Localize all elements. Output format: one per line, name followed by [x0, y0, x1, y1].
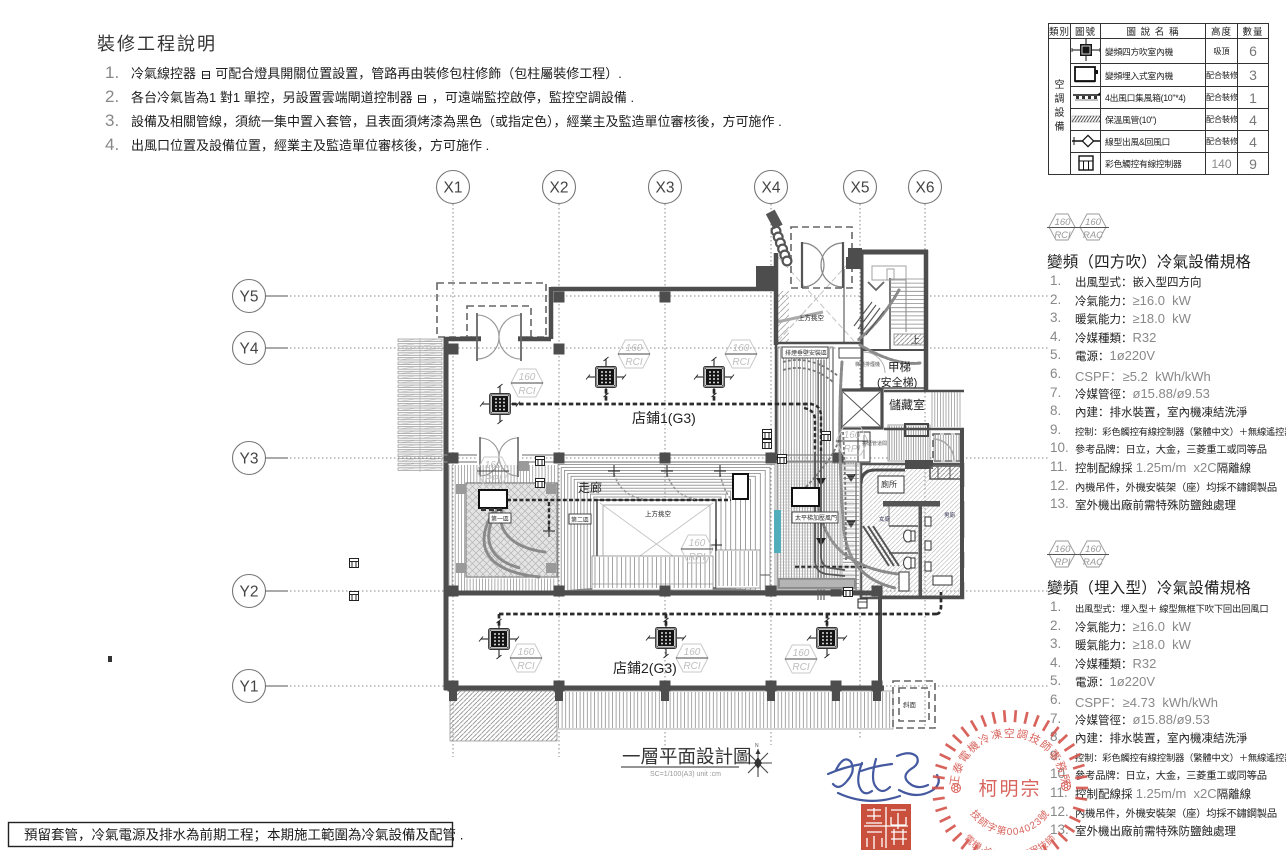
svg-text:技師字第004023號: 技師字第004023號 [968, 807, 1053, 838]
svg-text:Y5: Y5 [240, 289, 259, 306]
svg-text:160: 160 [519, 372, 536, 383]
svg-text:RCI: RCI [683, 661, 700, 672]
svg-text:RCI: RCI [625, 357, 642, 368]
svg-text:排煙管道間: 排煙管道間 [862, 440, 887, 447]
svg-text:RPI: RPI [485, 474, 502, 485]
svg-text:店鋪1(G3): 店鋪1(G3) [632, 410, 696, 426]
svg-text:一層平面設計圖: 一層平面設計圖 [622, 746, 752, 767]
svg-text:上方挑空: 上方挑空 [645, 509, 672, 518]
svg-text:Y4: Y4 [240, 341, 259, 358]
svg-text:X5: X5 [851, 180, 870, 197]
svg-text:店鋪2(G3): 店鋪2(G3) [613, 660, 677, 676]
svg-text:走廊: 走廊 [578, 480, 602, 495]
svg-text:160: 160 [793, 648, 810, 659]
svg-text:160: 160 [689, 538, 706, 549]
svg-text:N: N [755, 743, 759, 749]
svg-text:RCI: RCI [518, 386, 535, 397]
svg-text:Y3: Y3 [240, 451, 259, 468]
svg-text:排煙垂壁安裝區: 排煙垂壁安裝區 [785, 349, 827, 357]
svg-text:女廁: 女廁 [879, 515, 891, 523]
svg-text:RPI: RPI [689, 552, 706, 563]
svg-text:160: 160 [626, 343, 643, 354]
svg-text:(安全梯): (安全梯) [877, 375, 917, 389]
svg-text:160: 160 [485, 460, 502, 471]
svg-text:上: 上 [911, 335, 920, 345]
svg-text:160: 160 [844, 430, 861, 441]
svg-text:廁所: 廁所 [881, 479, 897, 489]
svg-text:Y2: Y2 [240, 584, 259, 601]
svg-text:X4: X4 [762, 180, 781, 197]
svg-text:160: 160 [733, 343, 750, 354]
svg-text:RCI: RCI [732, 357, 749, 368]
svg-text:梯廳排煙機: 梯廳排煙機 [855, 361, 880, 368]
svg-text:X6: X6 [916, 180, 935, 197]
svg-text:X3: X3 [656, 180, 675, 197]
svg-text:柯明宗: 柯明宗 [978, 778, 1041, 800]
svg-text:斜面: 斜面 [903, 700, 917, 709]
svg-text:第一區: 第一區 [491, 515, 509, 523]
svg-text:RPI: RPI [844, 444, 861, 455]
svg-text:儲藏室: 儲藏室 [889, 397, 925, 412]
svg-text:RCI: RCI [792, 662, 809, 673]
svg-text:太平梯加壓風門: 太平梯加壓風門 [795, 514, 837, 522]
svg-text:X2: X2 [550, 180, 569, 197]
svg-text:160: 160 [684, 647, 701, 658]
svg-text:160: 160 [518, 647, 535, 658]
svg-text:預留套管，冷氣電源及排水為前期工程；本期施工範圍為冷氣設備及: 預留套管，冷氣電源及排水為前期工程；本期施工範圍為冷氣設備及配管 . [24, 827, 464, 844]
svg-text:SC=1/100(A3) unit :cm: SC=1/100(A3) unit :cm [650, 771, 721, 778]
svg-text:上方挑空: 上方挑空 [798, 313, 825, 322]
svg-text:RCI: RCI [517, 661, 534, 672]
svg-text:男廁: 男廁 [944, 511, 956, 519]
svg-text:Y1: Y1 [240, 679, 259, 696]
svg-text:X1: X1 [444, 180, 463, 197]
svg-text:甲梯: 甲梯 [888, 361, 911, 374]
svg-text:第二區: 第二區 [571, 516, 589, 524]
